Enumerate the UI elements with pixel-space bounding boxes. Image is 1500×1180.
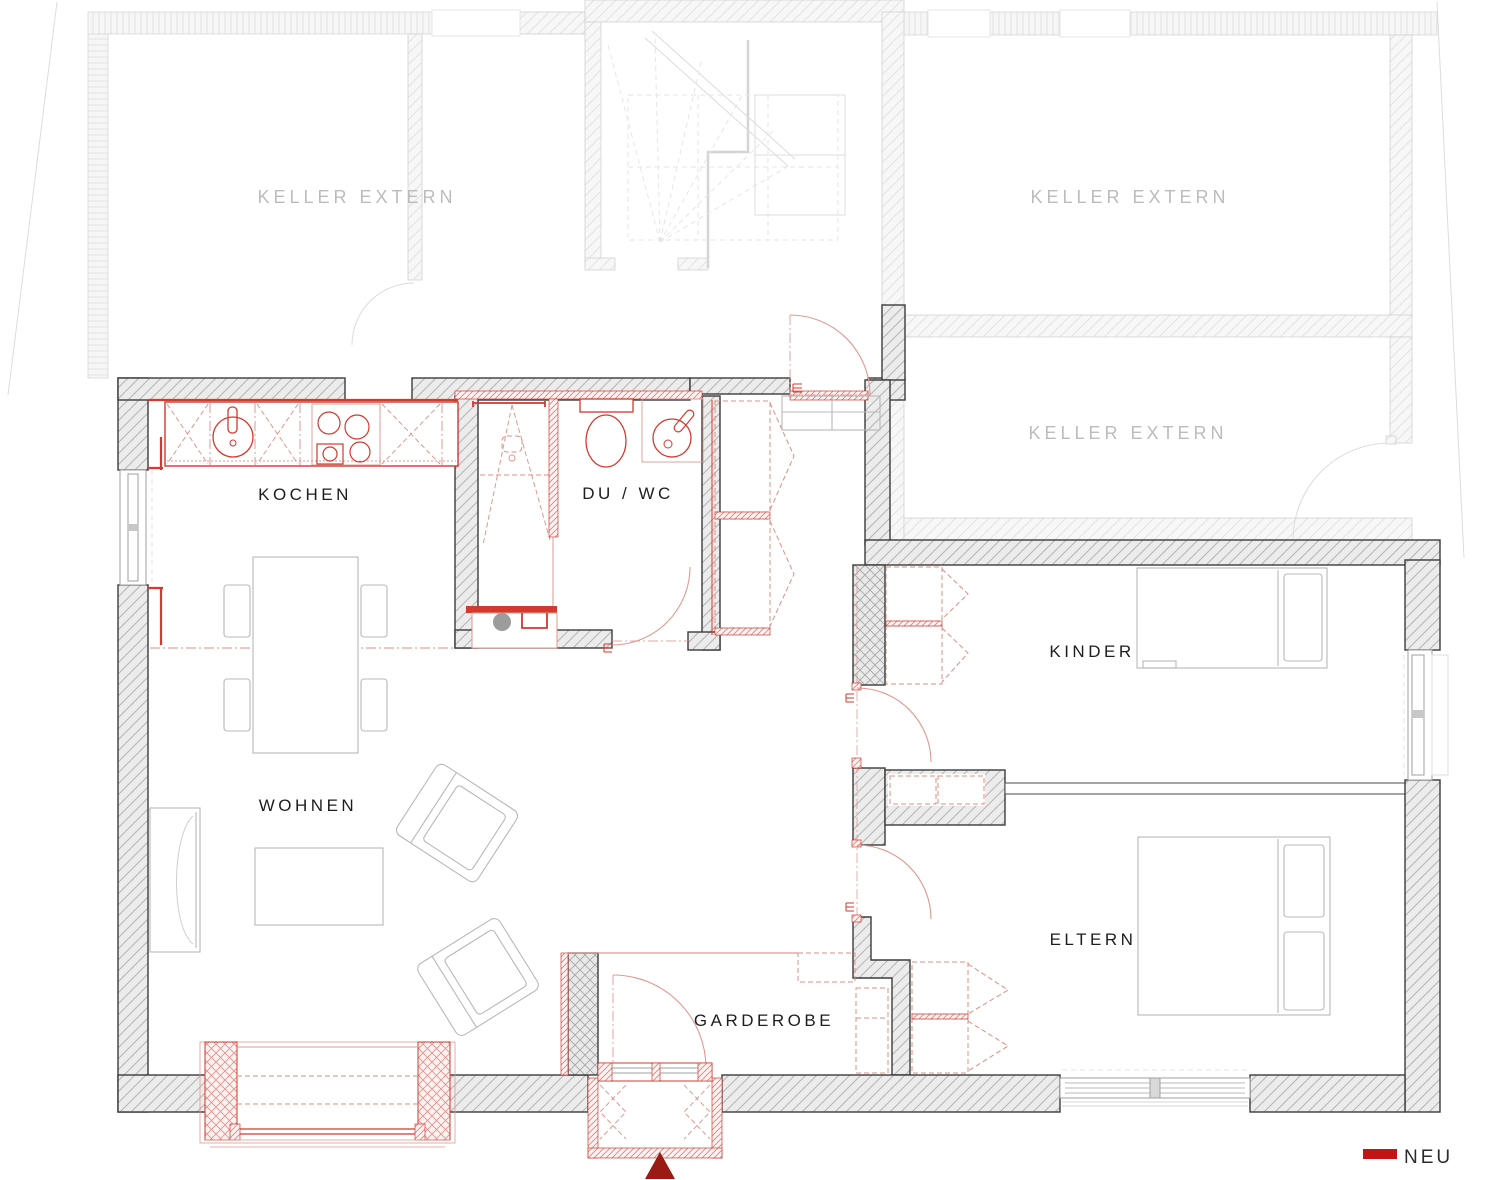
legend-new-swatch	[1363, 1149, 1397, 1159]
dining-table	[224, 557, 387, 753]
door-arc-kinder	[857, 688, 931, 762]
room-labels: KELLER EXTERN KELLER EXTERN KELLER EXTER…	[257, 187, 1229, 1030]
entrance-vestibule	[588, 1063, 722, 1158]
kinder-closet	[886, 567, 968, 684]
door-hardware-icon	[846, 694, 854, 702]
floor-plan-canvas: KELLER EXTERN KELLER EXTERN KELLER EXTER…	[0, 0, 1500, 1180]
kitchen-counter	[165, 402, 458, 466]
staircase	[608, 31, 838, 242]
room-label-keller-top-right: KELLER EXTERN	[1030, 187, 1229, 207]
window-eltern-bottom	[1060, 1070, 1250, 1106]
room-label-keller-top-left: KELLER EXTERN	[257, 187, 456, 207]
window-kitchen-left	[120, 470, 152, 585]
hall-wardrobe	[712, 400, 794, 635]
coffee-table	[255, 848, 383, 925]
entrance-door-top	[788, 315, 870, 400]
room-label-kochen: KOCHEN	[258, 485, 352, 504]
floor-drain-icon	[493, 613, 511, 631]
eltern-bed	[1138, 837, 1330, 1015]
door-hardware-icon	[846, 903, 854, 911]
room-label-du-wc: DU / WC	[582, 484, 674, 503]
room-label-garderobe: GARDEROBE	[694, 1011, 834, 1030]
kinder-bed	[1137, 568, 1327, 668]
site-boundary-lines	[8, 2, 1464, 558]
door-arc-bathroom	[612, 567, 690, 645]
keller-existing-layer	[88, 0, 1437, 560]
door-arc-entrance	[790, 315, 870, 395]
room-label-keller-mid-right: KELLER EXTERN	[1028, 423, 1227, 443]
room-label-wohnen: WOHNEN	[259, 796, 357, 815]
sideboard	[150, 808, 200, 952]
room-label-eltern: ELTERN	[1050, 930, 1137, 949]
legend: NEU	[1363, 1147, 1453, 1168]
room-label-kinder: KINDER	[1049, 642, 1134, 661]
bathroom-fixtures	[455, 391, 703, 652]
floor-plan-page: KELLER EXTERN KELLER EXTERN KELLER EXTER…	[0, 0, 1500, 1180]
armchair	[415, 916, 541, 1038]
door-arc-garderobe	[613, 975, 706, 1068]
washbasin-icon	[642, 399, 703, 462]
eltern-door	[846, 840, 931, 922]
armchair	[394, 762, 520, 885]
wohnen-window-new	[200, 1042, 455, 1147]
door-arc-eltern	[857, 845, 931, 919]
window-kinder-right	[1404, 650, 1448, 780]
toilet-icon	[580, 399, 633, 467]
legend-new-label: NEU	[1404, 1147, 1453, 1168]
